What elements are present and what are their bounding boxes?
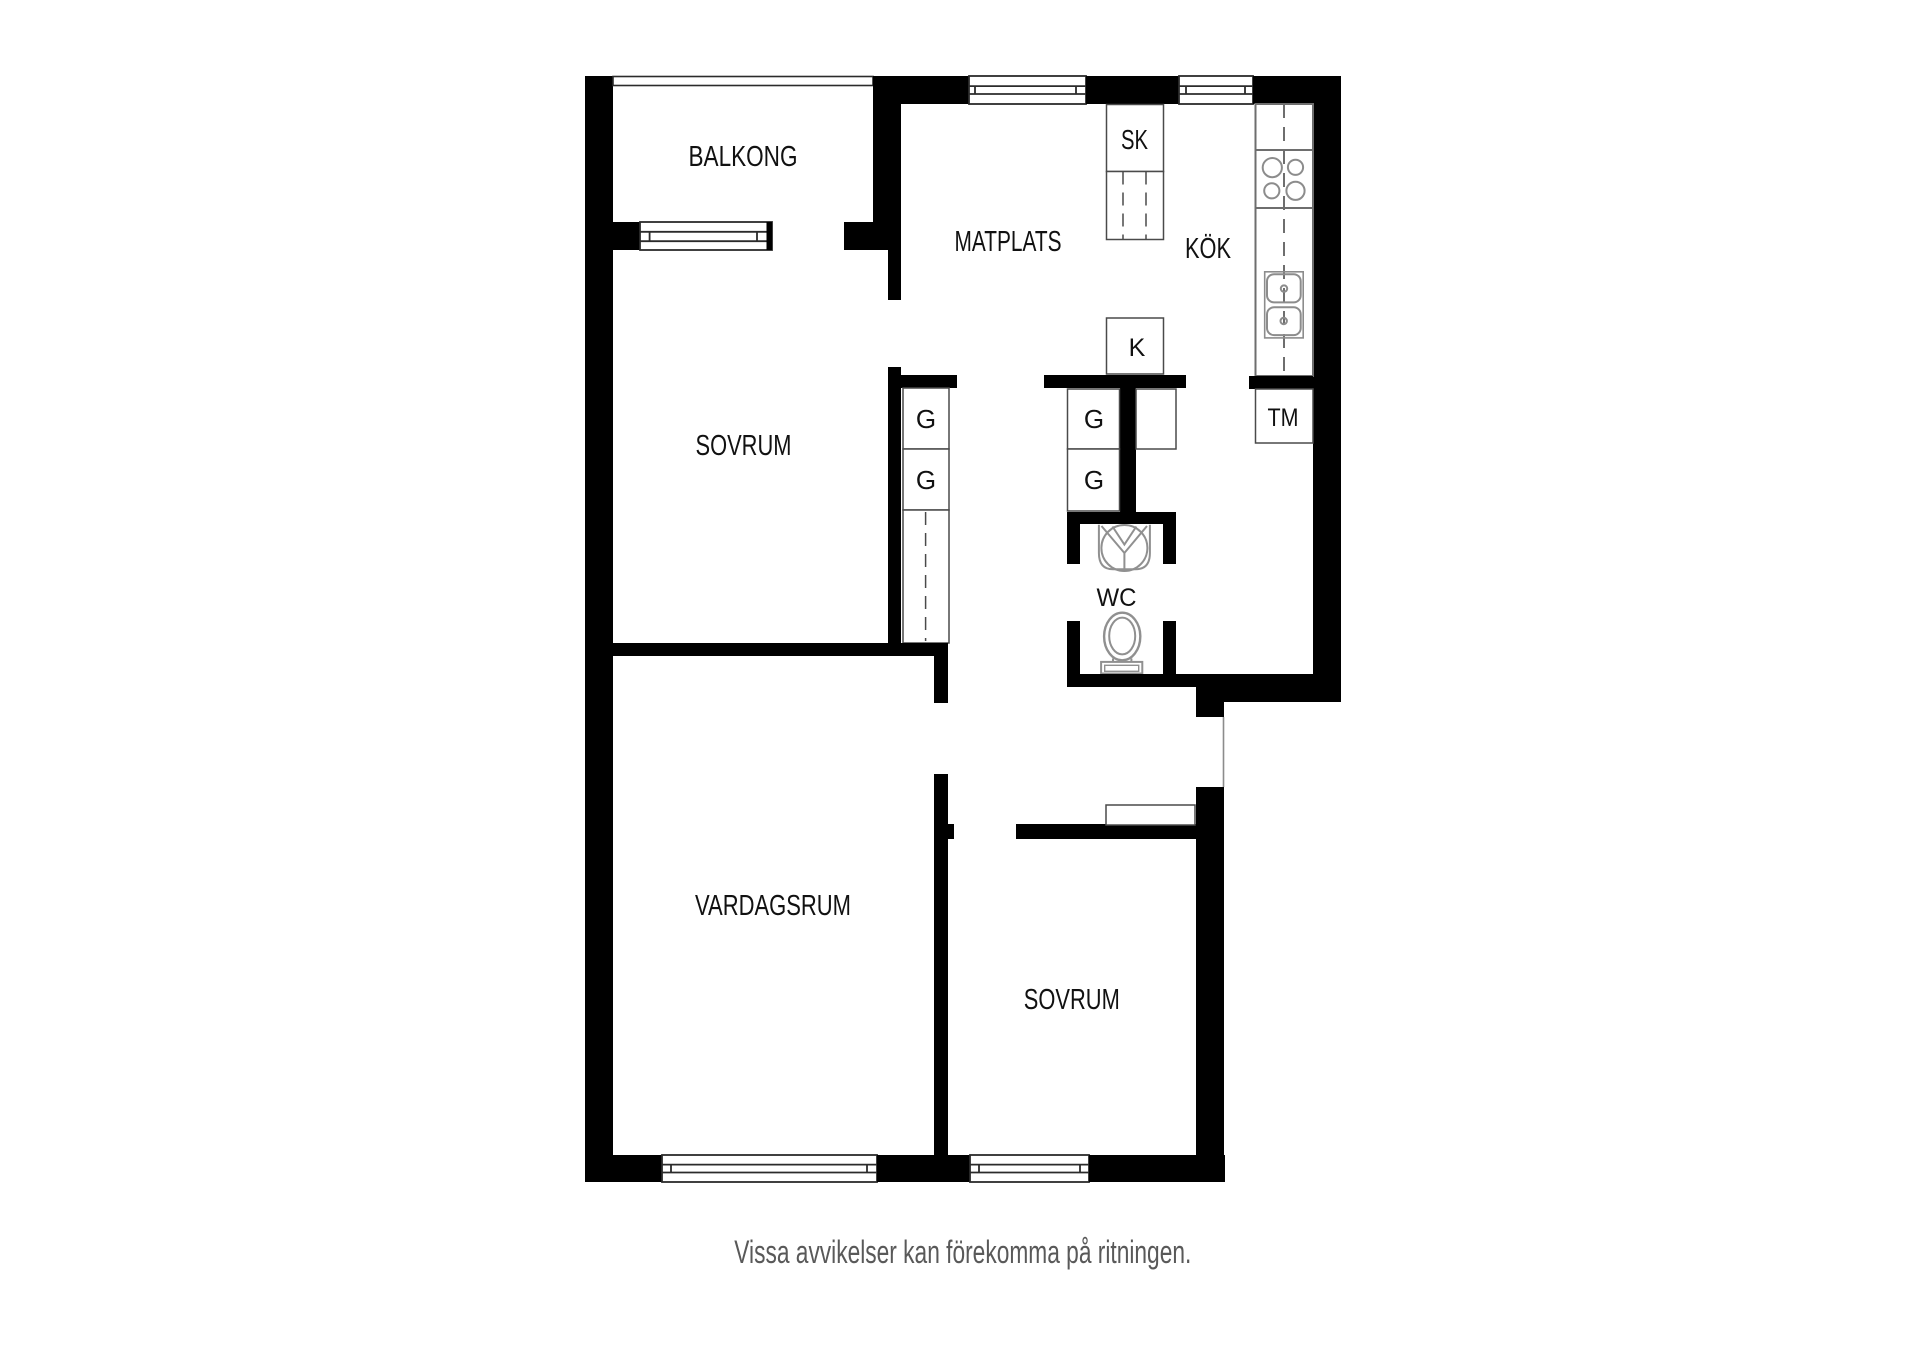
svg-text:SK: SK (1121, 124, 1148, 155)
svg-text:VARDAGSRUM: VARDAGSRUM (695, 890, 851, 922)
svg-text:G: G (916, 404, 936, 434)
svg-text:SOVRUM: SOVRUM (696, 430, 792, 462)
svg-text:MATPLATS: MATPLATS (955, 226, 1062, 258)
svg-text:Vissa avvikelser kan förekomma: Vissa avvikelser kan förekomma på ritnin… (734, 1234, 1191, 1270)
svg-text:G: G (1084, 404, 1104, 434)
svg-text:KÖK: KÖK (1185, 233, 1231, 265)
svg-text:K: K (1129, 334, 1146, 362)
svg-text:SOVRUM: SOVRUM (1024, 984, 1120, 1016)
svg-text:G: G (916, 465, 936, 495)
svg-text:WC: WC (1097, 584, 1137, 612)
svg-text:TM: TM (1268, 404, 1299, 432)
svg-text:BALKONG: BALKONG (689, 141, 798, 173)
svg-text:G: G (1084, 465, 1104, 495)
